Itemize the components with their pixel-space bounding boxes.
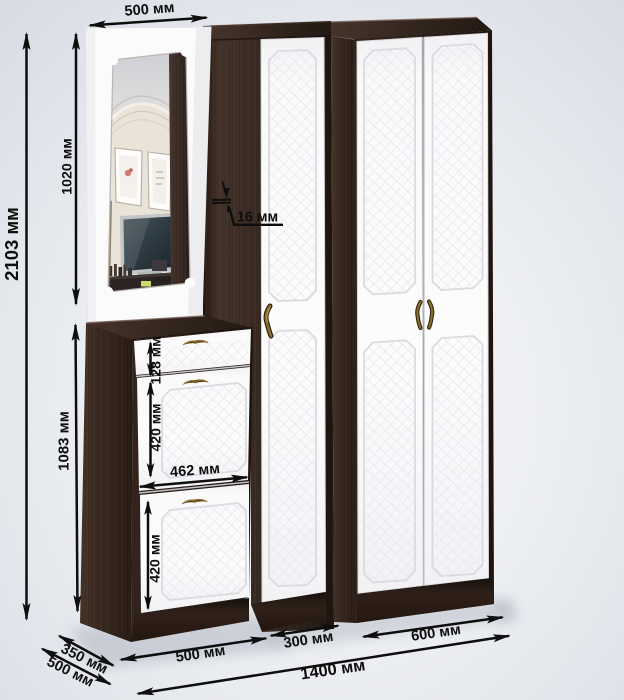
svg-text:1020 мм: 1020 мм — [59, 138, 75, 195]
svg-text:420 мм: 420 мм — [148, 404, 164, 452]
svg-text:16 мм: 16 мм — [237, 210, 278, 226]
svg-text:2103 мм: 2103 мм — [1, 207, 22, 281]
svg-text:420 мм: 420 мм — [147, 534, 163, 583]
svg-text:128 мм: 128 мм — [148, 337, 164, 385]
svg-text:1083 мм: 1083 мм — [55, 411, 72, 471]
